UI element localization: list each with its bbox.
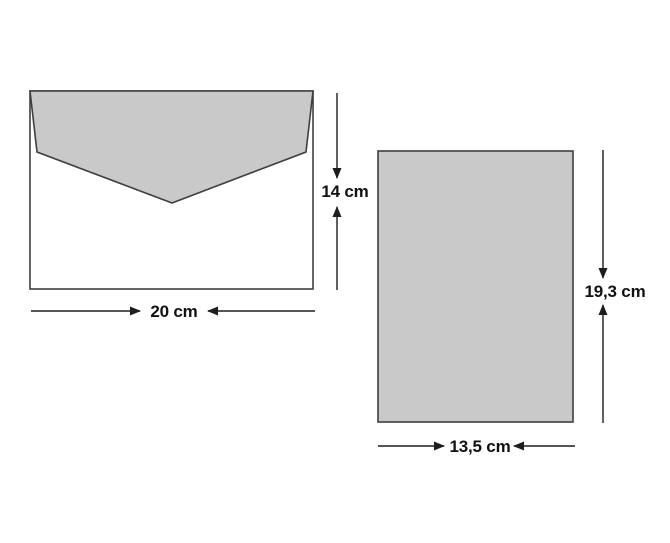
envelope-width-label: 20 cm [150,302,197,321]
envelope-height-label: 14 cm [321,182,368,201]
card-height-label: 19,3 cm [585,282,646,301]
card-rect [378,151,573,422]
card-width-label: 13,5 cm [450,437,511,456]
envelope-card-diagram: 14 cm 20 cm 19,3 cm 13,5 cm [0,0,670,543]
diagram-stage: 14 cm 20 cm 19,3 cm 13,5 cm [0,0,670,543]
